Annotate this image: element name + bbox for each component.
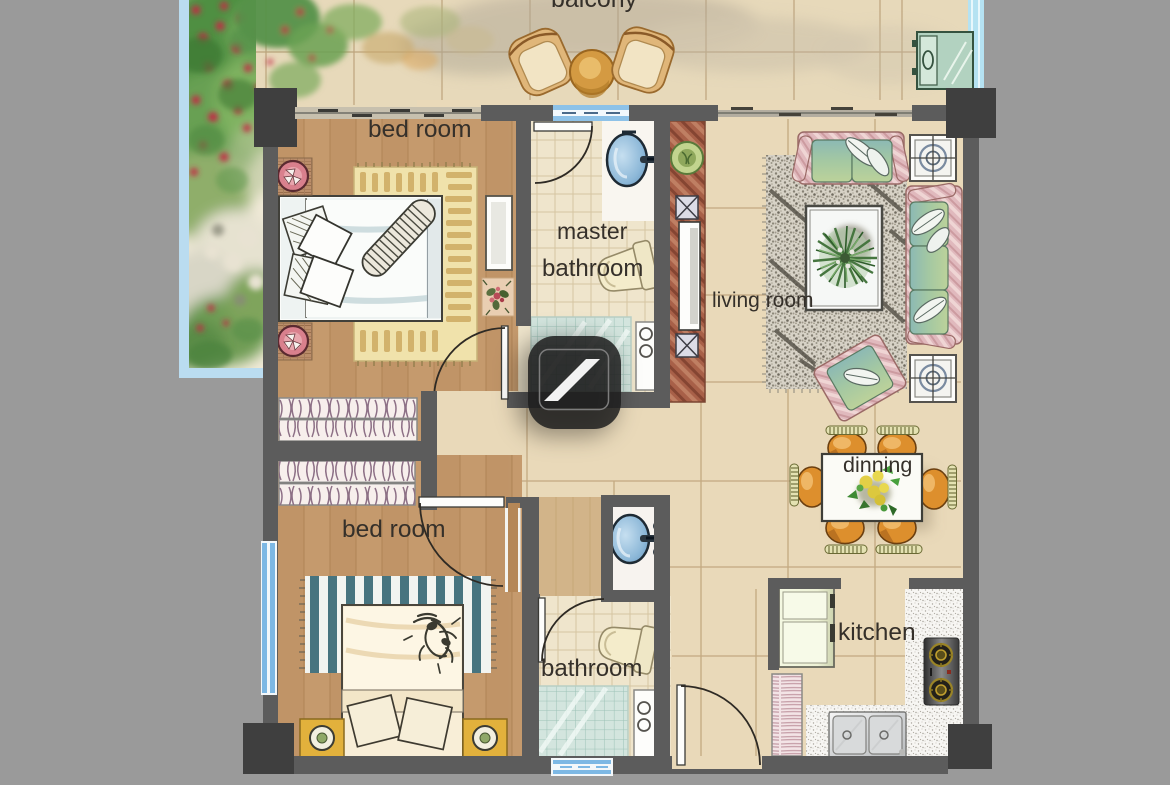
svg-text:dinning: dinning <box>843 453 912 477</box>
svg-text:balcony: balcony <box>551 0 638 13</box>
svg-text:bathroom: bathroom <box>541 655 642 682</box>
svg-text:bed room: bed room <box>342 516 446 543</box>
svg-text:bathroom: bathroom <box>542 255 643 282</box>
svg-text:kitchen: kitchen <box>838 619 916 646</box>
svg-text:bed room: bed room <box>368 116 472 143</box>
svg-text:living room: living room <box>712 289 814 312</box>
svg-text:master: master <box>557 218 628 244</box>
